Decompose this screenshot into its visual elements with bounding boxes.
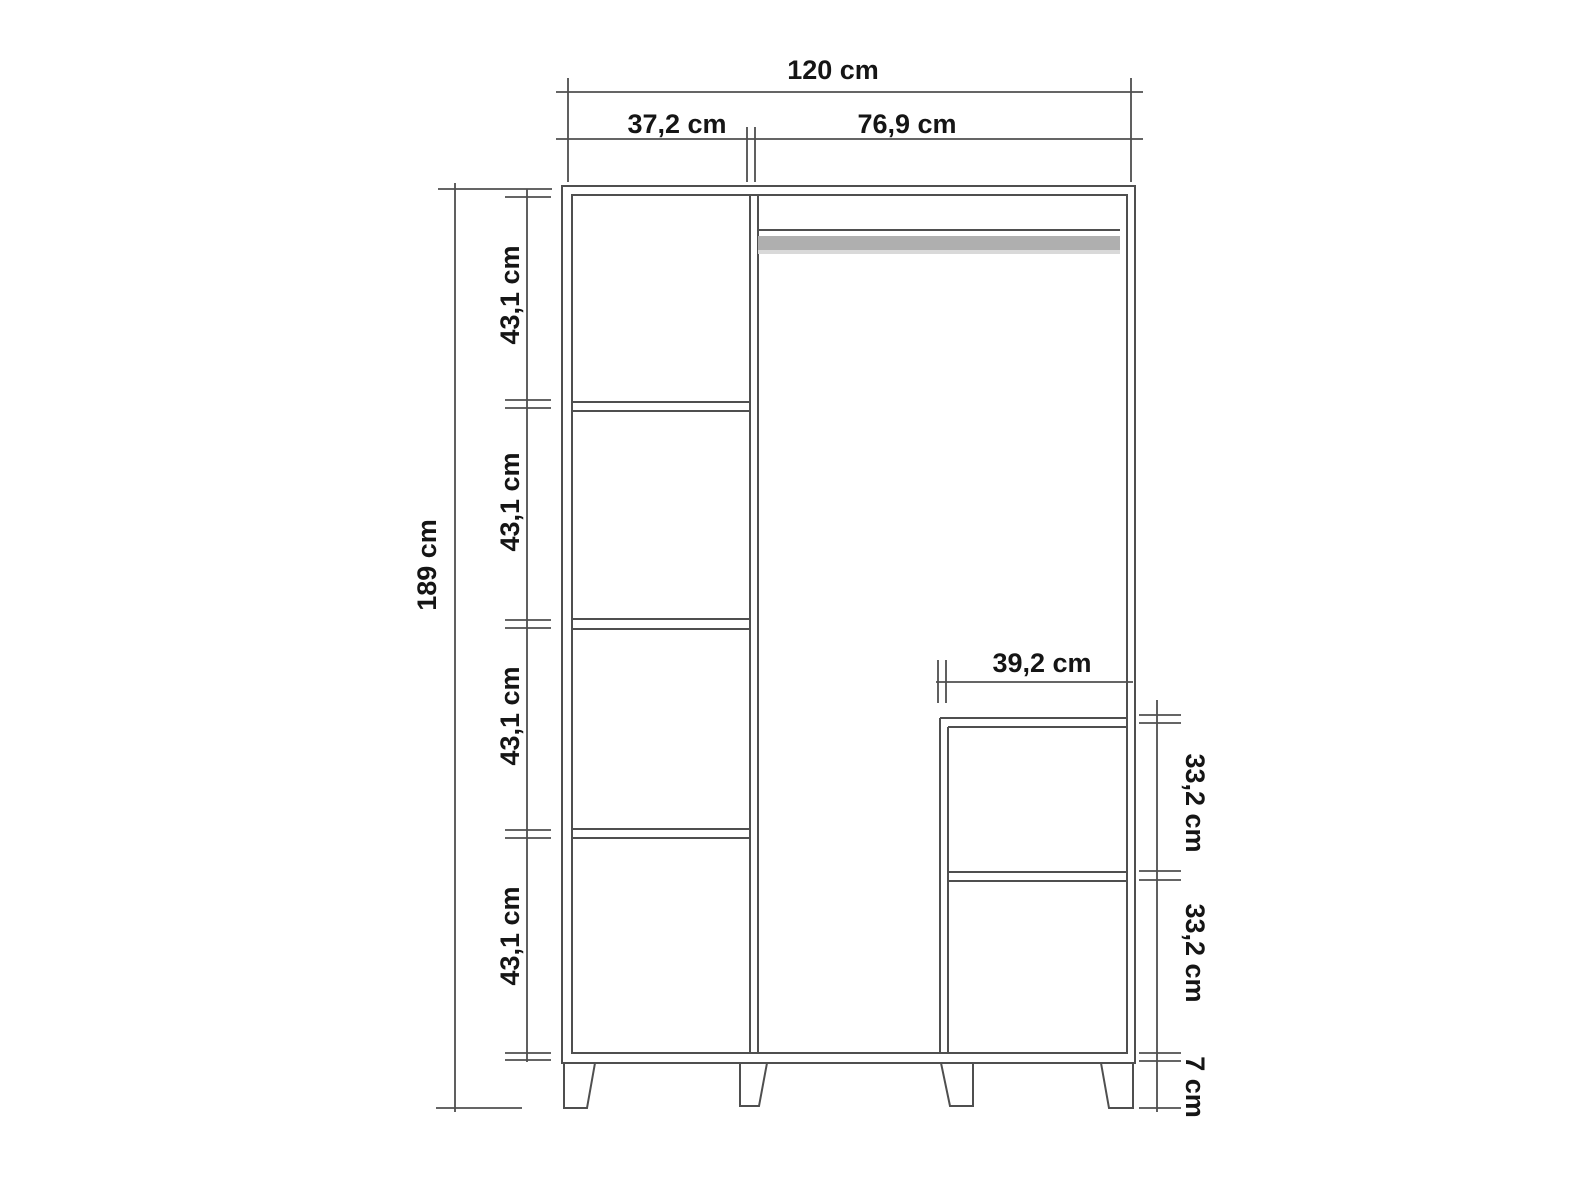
sub-compartment [940, 718, 1127, 1053]
label-right-section-width: 76,9 cm [857, 109, 956, 139]
leg-outer-right [1101, 1063, 1133, 1108]
leg-inner-right [941, 1063, 973, 1106]
wardrobe-outer-frame [562, 186, 1135, 1063]
hanging-rail-shadow [758, 250, 1120, 254]
hanging-rail-bar [758, 236, 1120, 250]
label-left-section-width: 37,2 cm [627, 109, 726, 139]
label-left-shelf-height-2: 43,1 cm [495, 452, 525, 551]
hanging-rail [758, 230, 1120, 254]
label-total-height: 189 cm [412, 519, 442, 611]
dimension-lines [436, 78, 1181, 1112]
wardrobe-dimension-diagram: 120 cm 37,2 cm 76,9 cm 189 cm 43,1 cm 43… [0, 0, 1590, 1193]
right-height-dimensions [1139, 700, 1181, 1112]
legs [564, 1063, 1133, 1108]
left-shelf-2 [572, 619, 750, 629]
leg-outer-left [564, 1063, 595, 1108]
wardrobe-body [562, 186, 1135, 1108]
label-total-width: 120 cm [787, 55, 879, 85]
dimension-labels: 120 cm 37,2 cm 76,9 cm 189 cm 43,1 cm 43… [412, 55, 1210, 1118]
total-height-dimension [436, 183, 552, 1112]
label-left-shelf-height-1: 43,1 cm [495, 245, 525, 344]
label-right-shelf-height-2: 33,2 cm [1180, 903, 1210, 1002]
wardrobe-inner-frame [572, 195, 1127, 1053]
left-shelf-1 [572, 402, 750, 411]
left-shelf-3 [572, 829, 750, 838]
leg-inner-left [740, 1063, 767, 1106]
label-inner-section-width: 39,2 cm [992, 648, 1091, 678]
diagram-drawing: 120 cm 37,2 cm 76,9 cm 189 cm 43,1 cm 43… [0, 0, 1590, 1193]
label-right-shelf-height-1: 33,2 cm [1180, 753, 1210, 852]
label-leg-height: 7 cm [1180, 1056, 1210, 1118]
label-left-shelf-height-3: 43,1 cm [495, 666, 525, 765]
label-left-shelf-height-4: 43,1 cm [495, 886, 525, 985]
